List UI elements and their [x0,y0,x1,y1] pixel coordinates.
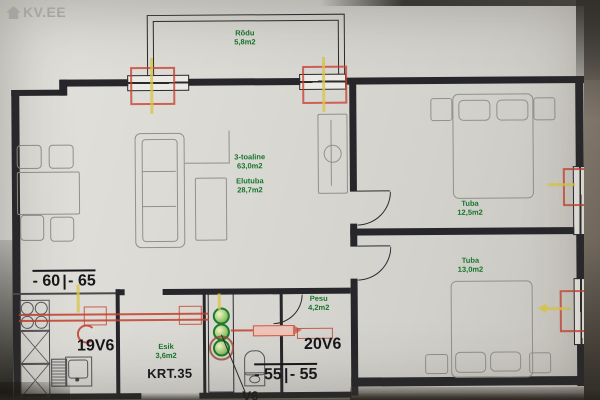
house-icon [6,6,21,19]
apartment-total-area: 63,0m2 [220,161,280,170]
nightstand-symbol [533,97,555,120]
floorplan-drawing: Rõdu 5,8m2 [0,0,600,400]
nightstand-symbol [529,352,551,373]
pipe-arrow-body [253,325,295,336]
stove-burner [21,316,34,329]
riser-pipe-circle [213,307,230,324]
living-room-area: 28,7m2 [220,185,280,194]
hallway-name: Esik [146,342,186,351]
balcony-area: 5,8m2 [225,37,265,46]
yellow-mark-horizontal [548,183,575,186]
yellow-mark-vertical [322,57,325,112]
radiator-red-mark [179,306,202,325]
apartment-type: 3-toaline [220,152,280,161]
radiator-red-mark [84,306,107,325]
nightstand-symbol [425,354,448,374]
wall-bedroom-divider [350,227,584,236]
dining-table-symbol [17,172,80,215]
pillow-symbol [496,99,528,120]
nightstand-symbol [430,98,452,121]
measure-value: - 65 [68,272,96,290]
bedroom1-label: Tuba 12,5m2 [440,199,500,217]
balcony-name: Rõdu [225,28,265,37]
pillow-symbol [458,100,490,121]
door-bedroom2-arc [357,246,391,280]
measure-mark-bottom: - 55- 55 [254,363,317,384]
wall-bottom-left-b [199,392,351,399]
living-room-label: Elutuba 28,7m2 [220,176,280,194]
kitchen-cabinet-symbol [20,330,50,365]
riser-code-right: 20V6 [304,336,341,354]
chair-symbol [50,217,74,242]
kitchen-counter-line [13,292,116,294]
bedroom2-name: Tuba [440,256,500,265]
stove-burner [35,316,48,329]
window-red-mark [560,290,593,332]
riser-code-bottom: V6 [242,388,258,400]
measure-value: - 55 [290,366,318,384]
measure-value: - 60 [33,273,61,291]
bedroom1-name: Tuba [440,199,500,208]
balcony-label: Rõdu 5,8m2 [225,28,265,46]
watermark-text: KV.EE [23,4,66,20]
kv-ee-watermark: KV.EE [6,4,66,20]
bathroom-label: Pesu 4,2m2 [299,294,339,312]
sink-basin [68,359,88,378]
pillow-symbol [490,351,521,371]
riser-code-left: 19V6 [77,337,114,355]
bathroom-name: Pesu [299,294,339,303]
apartment-number: KRT.35 [147,366,192,381]
wall-mid-vertical-upper [349,83,357,192]
bathroom-area: 4,2m2 [299,303,339,312]
yellow-arrow-line [546,307,571,310]
sofa-seat [142,139,179,242]
wall-top-left-jog-h [11,90,65,96]
measure-value: - 55 [254,366,282,384]
floorplan-photo: Rõdu 5,8m2 [0,0,600,400]
bedroom1-area: 12,5m2 [440,208,500,217]
yellow-mark-vertical [218,294,221,310]
yellow-mark-vertical [150,58,153,114]
measure-divider [63,274,65,289]
pillow-symbol [455,352,486,373]
hallway-area: 3,6m2 [146,351,186,360]
hallway-label: Esik 3,6m2 [146,342,186,360]
measure-divider [285,368,287,383]
measure-mark-top-left: - 60- 65 [32,269,95,290]
door-bedroom1-arc [357,191,391,225]
chair-symbol [49,145,74,169]
wall-hall-left [116,289,121,397]
apartment-summary-label: 3-toaline 63,0m2 [220,152,280,170]
kitchen-cabinet-symbol [20,363,50,398]
bedroom2-area: 13,0m2 [440,265,500,274]
wall-hall-right [203,291,207,397]
window-red-mark [563,168,595,206]
yellow-arrow-tip [538,303,547,313]
bedroom2-label: Tuba 13,0m2 [440,256,500,274]
sink-faucet-dot [75,378,79,382]
wardrobe-knob-circle [324,145,342,163]
living-room-name: Elutuba [220,176,280,185]
chair-symbol [20,215,44,241]
chair-symbol [17,145,42,169]
